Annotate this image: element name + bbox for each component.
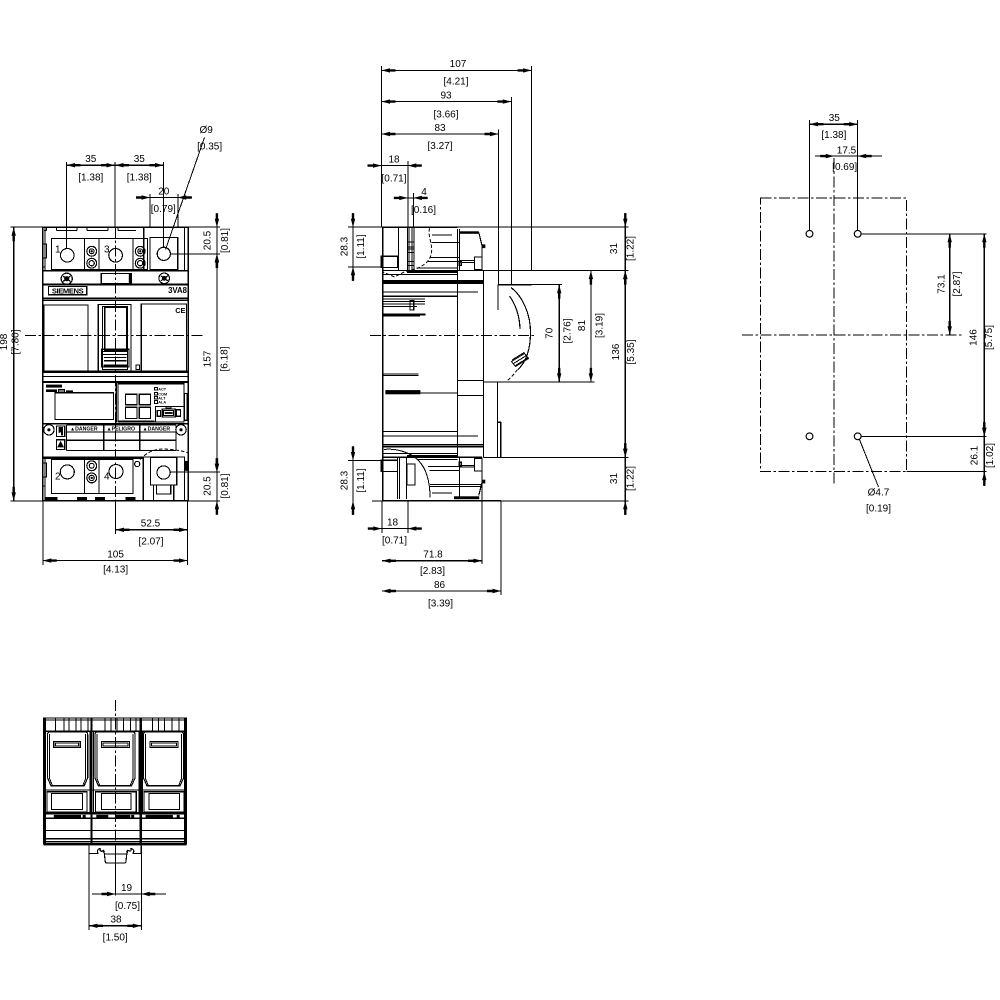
svg-text:[2.76]: [2.76] bbox=[563, 318, 574, 343]
svg-text:17.5: 17.5 bbox=[837, 146, 857, 157]
svg-text:73.1: 73.1 bbox=[937, 274, 948, 294]
svg-text:[2.83]: [2.83] bbox=[420, 566, 445, 577]
svg-text:35: 35 bbox=[829, 113, 841, 124]
svg-text:Ø4.7: Ø4.7 bbox=[868, 488, 890, 499]
svg-text:38: 38 bbox=[110, 915, 122, 926]
svg-text:70: 70 bbox=[545, 327, 556, 339]
svg-text:[1.02]: [1.02] bbox=[985, 443, 996, 468]
svg-text:20: 20 bbox=[158, 187, 170, 198]
svg-text:▲PELIGRO: ▲PELIGRO bbox=[107, 426, 135, 432]
svg-text:[1.22]: [1.22] bbox=[626, 466, 637, 491]
svg-text:146: 146 bbox=[969, 329, 980, 346]
svg-text:19: 19 bbox=[121, 883, 133, 894]
svg-text:[0.81]: [0.81] bbox=[220, 228, 231, 253]
svg-text:107: 107 bbox=[450, 59, 467, 70]
svg-text:[5.75]: [5.75] bbox=[984, 325, 995, 350]
svg-text:[1.38]: [1.38] bbox=[127, 173, 152, 184]
svg-text:[3.39]: [3.39] bbox=[428, 598, 453, 609]
svg-text:52.5: 52.5 bbox=[141, 519, 161, 530]
svg-text:3VA8: 3VA8 bbox=[168, 286, 188, 295]
svg-text:[7.80]: [7.80] bbox=[11, 329, 22, 354]
svg-text:[0.19]: [0.19] bbox=[866, 504, 891, 515]
svg-text:20.5: 20.5 bbox=[203, 230, 214, 250]
svg-text:[0.16]: [0.16] bbox=[411, 205, 436, 216]
svg-text:31: 31 bbox=[609, 243, 620, 255]
svg-text:Ø9: Ø9 bbox=[200, 125, 214, 136]
svg-text:4: 4 bbox=[421, 187, 427, 198]
svg-text:[2.87]: [2.87] bbox=[952, 271, 963, 296]
svg-text:[0.81]: [0.81] bbox=[220, 473, 231, 498]
svg-text:105: 105 bbox=[107, 549, 124, 560]
svg-text:[1.38]: [1.38] bbox=[821, 130, 846, 141]
svg-text:ACT: ACT bbox=[158, 388, 166, 392]
svg-text:ALA: ALA bbox=[158, 401, 166, 405]
svg-text:[0.79]: [0.79] bbox=[151, 204, 176, 215]
svg-text:3: 3 bbox=[104, 245, 110, 256]
svg-text:[3.27]: [3.27] bbox=[427, 141, 452, 152]
svg-text:▲DANGER: ▲DANGER bbox=[70, 426, 98, 432]
svg-text:[4.21]: [4.21] bbox=[443, 76, 468, 87]
svg-text:28.3: 28.3 bbox=[340, 470, 351, 490]
svg-text:[0.69]: [0.69] bbox=[832, 162, 857, 173]
svg-text:18: 18 bbox=[387, 517, 399, 528]
svg-text:4: 4 bbox=[104, 472, 110, 483]
svg-text:1: 1 bbox=[55, 245, 61, 256]
svg-text:[6.18]: [6.18] bbox=[220, 346, 231, 371]
svg-text:[1.11]: [1.11] bbox=[356, 468, 367, 492]
svg-text:20.5: 20.5 bbox=[203, 476, 214, 496]
svg-text:93: 93 bbox=[440, 90, 452, 101]
svg-text:▲DANGER: ▲DANGER bbox=[143, 426, 171, 432]
svg-text:71.8: 71.8 bbox=[423, 550, 443, 561]
svg-text:35: 35 bbox=[134, 154, 146, 165]
svg-text:[0.71]: [0.71] bbox=[381, 173, 406, 184]
svg-text:[3.66]: [3.66] bbox=[433, 109, 458, 120]
svg-text:[3.19]: [3.19] bbox=[595, 313, 606, 338]
svg-text:[1.38]: [1.38] bbox=[78, 173, 103, 184]
svg-text:18: 18 bbox=[388, 154, 400, 165]
svg-text:31: 31 bbox=[609, 473, 620, 485]
svg-text:198: 198 bbox=[0, 333, 10, 350]
svg-text:[2.07]: [2.07] bbox=[138, 537, 163, 548]
svg-text:86: 86 bbox=[434, 580, 446, 591]
svg-text:[0.71]: [0.71] bbox=[382, 536, 407, 547]
svg-text:[1.11]: [1.11] bbox=[356, 234, 367, 258]
svg-text:26.1: 26.1 bbox=[970, 445, 981, 465]
svg-text:35: 35 bbox=[85, 154, 97, 165]
svg-text:[4.13]: [4.13] bbox=[103, 564, 128, 575]
svg-text:[1.22]: [1.22] bbox=[626, 236, 637, 261]
svg-text:83: 83 bbox=[434, 123, 446, 134]
svg-text:2: 2 bbox=[55, 472, 61, 483]
svg-text:81: 81 bbox=[577, 320, 588, 332]
svg-text:136: 136 bbox=[611, 343, 622, 360]
svg-text:SIEMENS: SIEMENS bbox=[52, 286, 84, 295]
svg-text:157: 157 bbox=[203, 350, 214, 367]
svg-text:[1.50]: [1.50] bbox=[103, 933, 128, 944]
svg-text:CE: CE bbox=[175, 306, 185, 315]
svg-text:[0.75]: [0.75] bbox=[115, 901, 140, 912]
svg-text:28.3: 28.3 bbox=[340, 236, 351, 256]
svg-text:[5.35]: [5.35] bbox=[626, 339, 637, 364]
